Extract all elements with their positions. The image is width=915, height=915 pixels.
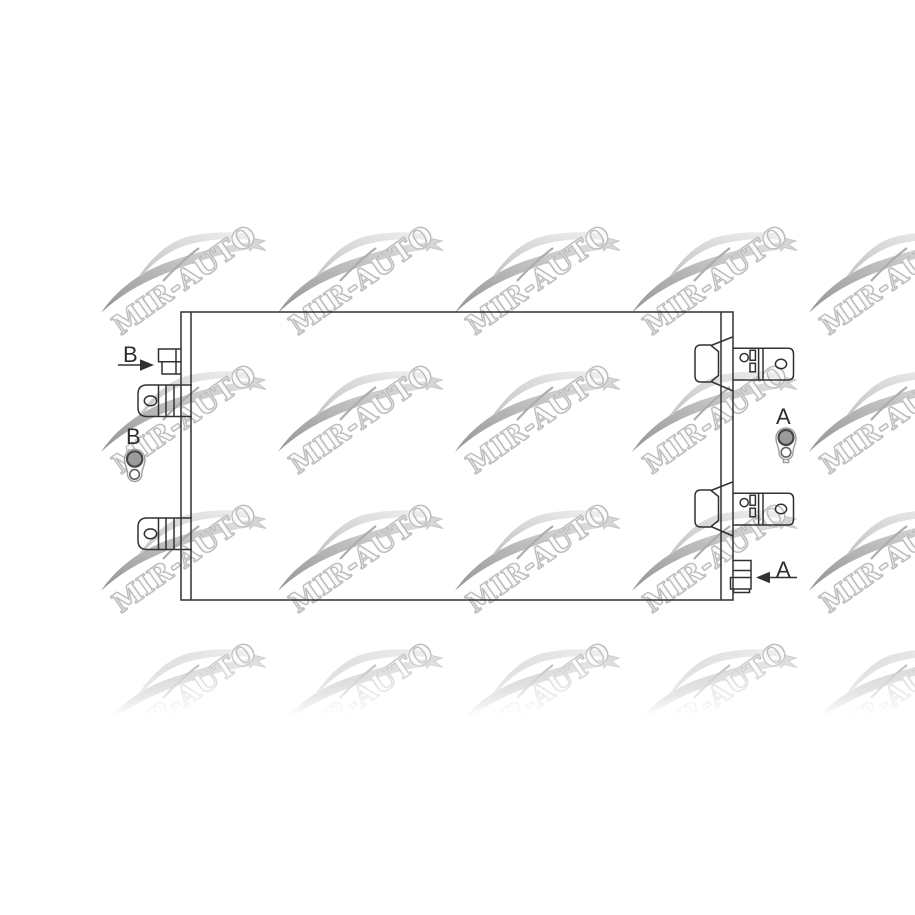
callout-a-valve: A	[776, 404, 791, 429]
watermarked-parts-diagram: MIR-AUTO MIR	[0, 0, 915, 915]
condenser-core-outline	[181, 312, 733, 600]
condenser-diagram	[0, 0, 915, 915]
mounting-bracket-top-left	[138, 385, 192, 417]
bracket-assembly-top-right	[695, 337, 794, 391]
service-valve-a	[776, 428, 796, 463]
fitting-port-b	[159, 349, 182, 374]
service-valve-b	[125, 449, 145, 481]
callout-b-fitting: B	[123, 342, 138, 367]
bracket-assembly-bottom-right	[695, 482, 794, 536]
mounting-bracket-bottom-left	[138, 518, 192, 550]
callout-b-valve: B	[126, 424, 141, 449]
callout-a-fitting: A	[776, 557, 791, 582]
